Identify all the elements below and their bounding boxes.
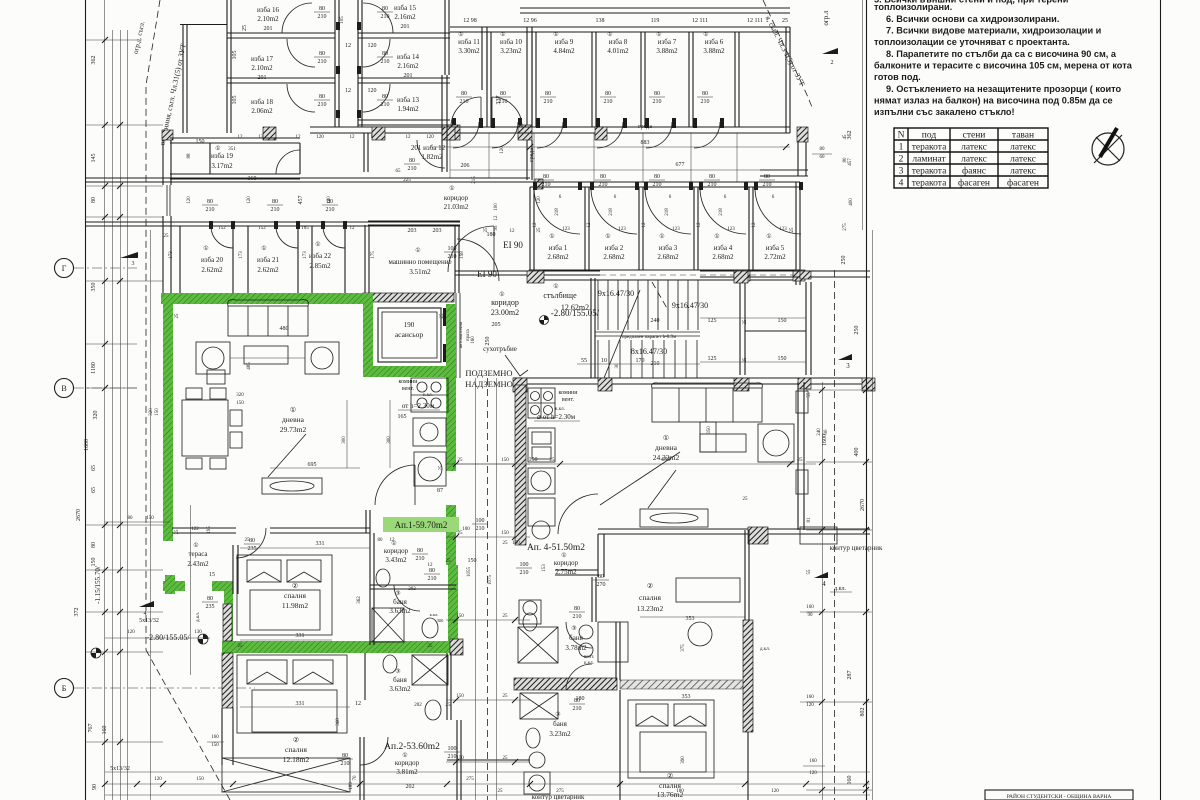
svg-text:12: 12	[345, 43, 351, 49]
svg-text:120: 120	[247, 196, 252, 204]
svg-text:12: 12	[752, 222, 757, 228]
svg-text:спалня: спалня	[285, 745, 307, 754]
svg-text:150: 150	[91, 558, 97, 567]
svg-text:150: 150	[529, 457, 538, 463]
svg-text:80: 80	[207, 199, 213, 205]
svg-text:10: 10	[601, 358, 607, 364]
svg-text:210: 210	[476, 526, 485, 532]
svg-text:2.68m2: 2.68m2	[603, 253, 625, 261]
svg-text:80: 80	[91, 197, 97, 203]
svg-text:изба 16: изба 16	[257, 6, 279, 14]
svg-text:150: 150	[211, 743, 219, 748]
svg-text:55: 55	[807, 569, 812, 575]
svg-text:25: 25	[446, 559, 452, 564]
svg-text:теракота: теракота	[912, 179, 947, 189]
svg-text:-2.80/155.05/: -2.80/155.05/	[551, 308, 600, 318]
svg-text:①: ①	[766, 233, 771, 240]
svg-text:В: В	[61, 384, 66, 393]
svg-text:①: ①	[607, 31, 612, 38]
svg-text:4: 4	[899, 179, 904, 189]
svg-text:105: 105	[232, 96, 238, 105]
svg-text:изба 6: изба 6	[705, 38, 724, 46]
svg-text:120: 120	[537, 196, 542, 204]
svg-text:изба 18: изба 18	[251, 98, 273, 106]
svg-text:д.кл.: д.кл.	[760, 647, 770, 652]
svg-text:203: 203	[433, 228, 442, 234]
svg-text:3.23m2: 3.23m2	[549, 730, 571, 738]
svg-text:12 111: 12 111	[747, 18, 763, 24]
svg-text:латекс: латекс	[1010, 143, 1036, 153]
svg-text:180: 180	[676, 789, 684, 794]
svg-text:8. Парапетите по стълби да са: 8. Парапетите по стълби да са с височина…	[886, 49, 1117, 59]
svg-text:218: 218	[609, 208, 614, 216]
svg-text:25: 25	[537, 227, 542, 233]
svg-text:120: 120	[368, 88, 377, 94]
svg-text:3.30m2: 3.30m2	[458, 47, 480, 55]
svg-text:2.68m2: 2.68m2	[547, 253, 569, 261]
svg-text:машинно помещение: машинно помещение	[388, 258, 451, 266]
svg-text:80: 80	[319, 94, 325, 100]
svg-text:360: 360	[248, 176, 257, 182]
svg-text:150: 150	[512, 541, 520, 546]
svg-text:201: 201	[404, 73, 413, 79]
svg-text:①: ①	[714, 233, 719, 240]
svg-text:210: 210	[599, 182, 608, 188]
svg-text:Ап.1-59.70m2: Ап.1-59.70m2	[395, 520, 448, 530]
svg-text:150: 150	[146, 516, 154, 521]
svg-text:вент.: вент.	[402, 386, 415, 392]
svg-text:80: 80	[764, 174, 770, 180]
svg-text:12: 12	[510, 229, 516, 234]
svg-text:210: 210	[318, 59, 327, 65]
svg-text:①: ①	[215, 145, 220, 152]
svg-text:80: 80	[207, 596, 213, 602]
svg-text:3.88m2: 3.88m2	[703, 47, 725, 55]
svg-text:90: 90	[824, 429, 829, 435]
svg-text:90: 90	[808, 613, 814, 618]
svg-text:изпълни със закалено стъкло!: изпълни със закалено стъкло!	[874, 107, 1015, 117]
svg-text:к.кл.: к.кл.	[423, 393, 433, 398]
svg-text:①: ①	[561, 552, 566, 559]
svg-text:80: 80	[342, 753, 348, 759]
svg-text:100: 100	[520, 562, 529, 568]
svg-text:80: 80	[382, 94, 388, 100]
svg-text:457: 457	[848, 158, 853, 166]
svg-text:25: 25	[782, 18, 788, 24]
svg-text:латекс: латекс	[961, 143, 987, 153]
svg-text:485: 485	[247, 362, 252, 370]
svg-text:87: 87	[437, 488, 443, 494]
svg-text:80: 80	[327, 199, 333, 205]
svg-text:стени: стени	[963, 131, 986, 141]
svg-text:25: 25	[428, 644, 434, 649]
svg-text:390: 390	[681, 756, 686, 764]
svg-text:спалня: спалня	[284, 591, 306, 600]
svg-text:55: 55	[807, 392, 812, 398]
svg-text:300: 300	[342, 436, 347, 444]
svg-text:12: 12	[345, 88, 351, 94]
svg-text:767: 767	[88, 724, 94, 733]
svg-text:12: 12	[533, 222, 538, 228]
svg-text:сухотръбие: сухотръбие	[483, 345, 517, 353]
svg-text:152: 152	[218, 226, 226, 231]
svg-text:80: 80	[654, 174, 660, 180]
svg-text:1.94m2: 1.94m2	[397, 105, 419, 113]
svg-text:100: 100	[494, 203, 499, 211]
svg-text:①: ①	[203, 245, 208, 252]
svg-text:130: 130	[194, 630, 202, 635]
svg-text:2.16m2: 2.16m2	[397, 62, 419, 70]
svg-text:160: 160	[806, 695, 814, 700]
svg-text:изба 3: изба 3	[659, 244, 678, 252]
svg-text:250: 250	[854, 326, 860, 335]
svg-text:①: ①	[449, 185, 454, 192]
svg-text:25: 25	[503, 694, 509, 699]
svg-text:③: ③	[571, 625, 576, 632]
svg-text:138: 138	[596, 18, 605, 24]
svg-text:210: 210	[573, 614, 582, 620]
svg-text:25: 25	[242, 25, 248, 31]
svg-text:160: 160	[809, 759, 817, 764]
svg-text:①: ①	[402, 752, 407, 759]
svg-text:80: 80	[128, 516, 134, 521]
svg-text:695: 695	[662, 457, 671, 463]
svg-text:изба 14: изба 14	[397, 53, 419, 61]
svg-text:2.62m2: 2.62m2	[201, 266, 223, 274]
svg-text:210: 210	[520, 570, 529, 576]
svg-text:120: 120	[426, 135, 434, 140]
svg-text:3.43m2: 3.43m2	[385, 556, 407, 564]
svg-text:1600: 1600	[84, 439, 90, 451]
svg-text:25: 25	[446, 703, 452, 708]
svg-text:3: 3	[132, 261, 135, 267]
svg-text:12.18m2: 12.18m2	[283, 755, 310, 764]
svg-text:①: ①	[703, 31, 708, 38]
svg-text:65: 65	[91, 487, 97, 493]
svg-text:①: ①	[659, 233, 664, 240]
svg-text:1: 1	[899, 143, 904, 153]
svg-text:②: ②	[292, 582, 298, 590]
svg-text:1075: 1075	[488, 575, 493, 586]
svg-text:210: 210	[544, 99, 553, 105]
svg-text:80: 80	[409, 158, 415, 164]
svg-text:25: 25	[790, 227, 795, 233]
svg-text:368: 368	[336, 718, 341, 726]
svg-text:латекс: латекс	[1010, 167, 1036, 177]
svg-text:150: 150	[468, 558, 477, 564]
svg-text:123: 123	[779, 227, 787, 232]
svg-text:3.78m2: 3.78m2	[565, 644, 587, 652]
svg-text:изба 1: изба 1	[549, 244, 568, 252]
svg-text:320: 320	[149, 408, 154, 416]
svg-text:таван: таван	[1012, 131, 1034, 141]
svg-text:комини: комини	[399, 379, 419, 385]
svg-text:210: 210	[206, 207, 215, 213]
svg-text:210: 210	[701, 99, 710, 105]
svg-text:фаянс: фаянс	[962, 166, 986, 177]
svg-text:331: 331	[296, 701, 305, 707]
svg-text:123: 123	[562, 227, 570, 232]
svg-text:①: ①	[605, 233, 610, 240]
svg-text:4.84m2: 4.84m2	[553, 47, 575, 55]
svg-text:400: 400	[854, 448, 860, 457]
svg-text:210: 210	[381, 14, 390, 20]
svg-text:коридор: коридор	[395, 759, 420, 767]
svg-text:фасаген: фасаген	[1007, 178, 1039, 189]
svg-text:202: 202	[406, 784, 415, 790]
svg-text:120: 120	[806, 703, 814, 708]
svg-text:235: 235	[206, 604, 215, 610]
svg-text:греда: греда	[529, 148, 535, 162]
svg-text:4: 4	[144, 611, 147, 617]
svg-text:173: 173	[239, 251, 244, 259]
svg-text:①: ①	[553, 283, 558, 290]
svg-text:23.00m2: 23.00m2	[491, 308, 519, 317]
svg-text:3.17m2: 3.17m2	[211, 162, 233, 170]
svg-text:250: 250	[841, 256, 847, 265]
svg-text:235: 235	[248, 546, 257, 552]
svg-text:300: 300	[387, 436, 392, 444]
svg-text:210: 210	[271, 207, 280, 213]
svg-text:спалня: спалня	[639, 593, 661, 602]
svg-text:коридор: коридор	[384, 547, 409, 555]
svg-text:ПОДЗЕМНО: ПОДЗЕМНО	[465, 368, 512, 378]
svg-text:изба 8: изба 8	[609, 38, 628, 46]
svg-text:①: ①	[290, 406, 296, 414]
svg-text:80: 80	[574, 698, 580, 704]
svg-text:202: 202	[408, 587, 416, 592]
svg-text:9x16.47/30: 9x16.47/30	[598, 289, 634, 298]
svg-text:изба 22: изба 22	[309, 252, 331, 260]
svg-text:150: 150	[196, 777, 204, 782]
svg-text:12: 12	[355, 701, 361, 707]
svg-text:80: 80	[605, 91, 611, 97]
svg-text:120: 120	[187, 196, 192, 204]
svg-text:12: 12	[494, 215, 499, 221]
svg-text:90: 90	[92, 784, 98, 790]
svg-text:95: 95	[494, 225, 499, 231]
svg-text:210: 210	[381, 59, 390, 65]
svg-text:топлоизолирани.: топлоизолирани.	[874, 2, 952, 12]
svg-text:изба 10: изба 10	[500, 38, 522, 46]
svg-text:①: ①	[656, 31, 661, 38]
svg-text:12 98: 12 98	[463, 18, 477, 24]
svg-text:3.88m2: 3.88m2	[656, 47, 678, 55]
svg-text:изба 4: изба 4	[714, 244, 733, 252]
svg-text:210: 210	[318, 14, 327, 20]
svg-text:①: ①	[415, 247, 420, 254]
svg-text:362: 362	[91, 56, 97, 65]
svg-text:362: 362	[357, 596, 362, 604]
svg-text:80: 80	[543, 174, 549, 180]
svg-text:100: 100	[476, 518, 485, 524]
svg-text:400: 400	[849, 198, 854, 206]
svg-text:баня: баня	[393, 676, 407, 684]
svg-text:60: 60	[820, 155, 826, 160]
svg-text:45: 45	[843, 134, 848, 140]
svg-text:80: 80	[461, 91, 467, 97]
svg-text:65: 65	[396, 169, 402, 174]
svg-text:дневна: дневна	[655, 443, 678, 452]
svg-text:240: 240	[651, 318, 660, 324]
svg-text:123: 123	[672, 227, 680, 232]
svg-text:100: 100	[448, 746, 457, 752]
svg-text:331: 331	[316, 541, 325, 547]
svg-text:3.23m2: 3.23m2	[500, 47, 522, 55]
svg-text:-2.80/155.05/: -2.80/155.05/	[146, 633, 190, 642]
svg-text:105: 105	[340, 16, 345, 24]
svg-text:Б: Б	[62, 684, 67, 693]
svg-text:Ап.2-53.60m2: Ап.2-53.60m2	[384, 742, 440, 752]
svg-text:210: 210	[326, 207, 335, 213]
svg-text:125: 125	[708, 318, 717, 324]
svg-text:125: 125	[708, 356, 717, 362]
svg-text:изба 11: изба 11	[458, 38, 480, 46]
svg-text:②: ②	[647, 582, 653, 590]
svg-text:12: 12	[390, 538, 396, 543]
svg-text:изба 17: изба 17	[251, 55, 273, 63]
svg-text:173: 173	[303, 251, 308, 259]
svg-text:от h=2.30м: от h=2.30м	[402, 402, 435, 410]
svg-text:2.68m2: 2.68m2	[657, 253, 679, 261]
svg-text:Ап. 4-51.50m2: Ап. 4-51.50m2	[527, 543, 585, 553]
svg-text:173: 173	[169, 251, 174, 259]
svg-text:изба 2: изба 2	[605, 244, 624, 252]
svg-text:25: 25	[743, 497, 749, 502]
svg-text:218: 218	[665, 208, 670, 216]
svg-text:контур цветарник: контур цветарник	[830, 544, 883, 552]
svg-text:350: 350	[91, 283, 97, 292]
svg-text:80: 80	[709, 174, 715, 180]
svg-text:80: 80	[702, 91, 708, 97]
svg-text:25: 25	[175, 313, 180, 319]
svg-text:210: 210	[763, 182, 772, 188]
svg-text:210: 210	[573, 706, 582, 712]
svg-text:15: 15	[209, 572, 215, 578]
svg-text:25: 25	[164, 234, 170, 239]
svg-text:ламинат: ламинат	[912, 155, 946, 165]
svg-text:65: 65	[91, 465, 97, 471]
svg-text:12: 12	[350, 226, 356, 231]
svg-text:160: 160	[806, 605, 814, 610]
svg-text:145: 145	[91, 154, 97, 163]
svg-text:883: 883	[641, 140, 650, 146]
svg-text:изба 5: изба 5	[766, 244, 785, 252]
svg-text:351: 351	[228, 147, 236, 152]
svg-text:латекс: латекс	[961, 155, 987, 165]
svg-text:4: 4	[822, 580, 826, 588]
svg-text:3.63m2: 3.63m2	[389, 685, 411, 693]
svg-text:вент.: вент.	[584, 655, 594, 660]
svg-text:①: ①	[193, 542, 198, 549]
svg-text:теракота: теракота	[912, 143, 947, 153]
svg-text:201: 201	[258, 75, 267, 81]
svg-text:5x13/32: 5x13/32	[139, 618, 159, 624]
svg-text:80: 80	[654, 91, 660, 97]
svg-text:25: 25	[175, 529, 180, 535]
svg-text:80: 80	[429, 568, 435, 574]
svg-text:80: 80	[91, 542, 97, 548]
svg-text:4.01m2: 4.01m2	[607, 47, 629, 55]
svg-text:контур цветарник: контур цветарник	[532, 793, 585, 800]
svg-text:изба 13: изба 13	[397, 96, 419, 104]
svg-text:2.16m2: 2.16m2	[394, 13, 416, 21]
svg-text:275: 275	[843, 223, 848, 231]
svg-text:к.кл.: к.кл.	[584, 661, 594, 666]
svg-text:55: 55	[581, 358, 587, 364]
svg-text:25: 25	[503, 756, 509, 761]
svg-text:7. Всички видове материали, хи: 7. Всички видове материали, хидроизолаци…	[886, 26, 1102, 36]
svg-text:210: 210	[408, 166, 417, 172]
svg-text:8x16.47/30: 8x16.47/30	[631, 347, 667, 356]
svg-text:нямат излаз на балкон) на вис: нямат излаз на балкон) на височина под 0…	[874, 96, 1113, 106]
svg-text:210: 210	[341, 761, 350, 767]
svg-text:80: 80	[382, 6, 388, 12]
svg-text:80: 80	[319, 51, 325, 57]
svg-text:80: 80	[249, 538, 255, 544]
svg-text:автоматична: автоматична	[459, 321, 464, 348]
svg-text:①: ①	[549, 233, 554, 240]
svg-text:2670: 2670	[860, 499, 866, 511]
svg-text:предпазен парапет h-0.9м: предпазен парапет h-0.9м	[622, 335, 677, 340]
svg-text:189: 189	[349, 782, 354, 790]
svg-text:изба 19: изба 19	[211, 152, 233, 160]
svg-text:3.51m2: 3.51m2	[409, 268, 431, 276]
svg-text:2.10m2: 2.10m2	[257, 15, 279, 23]
svg-text:210: 210	[428, 576, 437, 582]
svg-text:210: 210	[448, 754, 457, 760]
svg-text:1600: 1600	[822, 434, 828, 446]
svg-text:210: 210	[416, 556, 425, 562]
svg-text:88: 88	[187, 153, 192, 159]
svg-text:350: 350	[707, 426, 712, 434]
svg-text:320: 320	[236, 393, 244, 398]
svg-text:3: 3	[846, 362, 850, 370]
svg-text:80: 80	[820, 147, 826, 152]
svg-text:218: 218	[555, 208, 560, 216]
svg-text:123: 123	[727, 227, 735, 232]
svg-text:1055: 1055	[467, 567, 472, 578]
svg-text:201: 201	[401, 24, 410, 30]
svg-text:80: 80	[382, 51, 388, 57]
svg-text:457: 457	[298, 196, 304, 205]
svg-text:119: 119	[651, 18, 660, 24]
svg-text:80: 80	[545, 91, 551, 97]
svg-text:12 96: 12 96	[523, 18, 537, 24]
svg-text:152: 152	[258, 226, 266, 231]
svg-text:165: 165	[301, 226, 309, 231]
svg-text:206: 206	[461, 163, 470, 169]
svg-text:РАЙОН СТУДЕНТСКИ - ОБЩИНА ВАРН: РАЙОН СТУДЕНТСКИ - ОБЩИНА ВАРНА	[1007, 792, 1112, 800]
svg-text:3: 3	[899, 167, 904, 177]
svg-text:160: 160	[102, 726, 108, 735]
svg-text:122: 122	[191, 527, 199, 532]
svg-text:13.23m2: 13.23m2	[637, 604, 664, 613]
svg-text:балконите и терасите с височи: балконите и терасите с височина 105 см, …	[874, 61, 1133, 71]
svg-text:210: 210	[318, 102, 327, 108]
svg-text:12: 12	[350, 135, 356, 140]
svg-text:100: 100	[448, 246, 457, 252]
svg-text:25: 25	[245, 538, 251, 543]
svg-text:203: 203	[408, 228, 417, 234]
svg-text:240: 240	[817, 428, 822, 436]
svg-text:70: 70	[353, 775, 358, 781]
svg-text:80: 80	[272, 199, 278, 205]
svg-text:①: ①	[499, 291, 504, 298]
svg-text:2.62m2: 2.62m2	[257, 266, 279, 274]
svg-text:25: 25	[503, 541, 509, 546]
svg-text:201 изба 12: 201 изба 12	[411, 144, 446, 152]
